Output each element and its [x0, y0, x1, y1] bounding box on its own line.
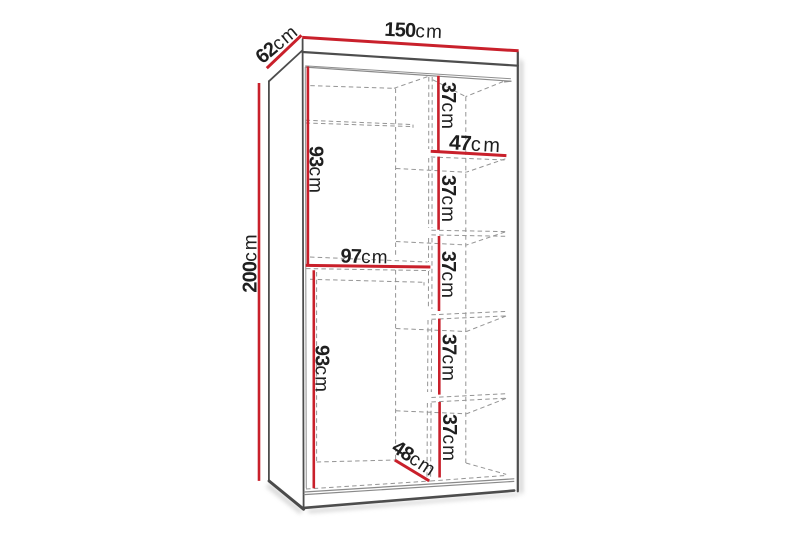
svg-text:37cm: 37cm — [437, 82, 459, 130]
svg-text:93cm: 93cm — [304, 146, 326, 194]
svg-text:200cm: 200cm — [240, 232, 262, 292]
svg-text:37cm: 37cm — [438, 414, 460, 462]
svg-text:37cm: 37cm — [437, 175, 459, 223]
svg-text:150cm: 150cm — [384, 19, 444, 44]
svg-text:97cm: 97cm — [340, 245, 389, 268]
svg-text:47cm: 47cm — [448, 131, 503, 157]
svg-text:93cm: 93cm — [311, 345, 333, 393]
svg-text:48cm: 48cm — [388, 436, 441, 481]
svg-text:37cm: 37cm — [437, 251, 459, 299]
svg-text:62cm: 62cm — [252, 20, 303, 68]
svg-text:37cm: 37cm — [438, 334, 460, 382]
